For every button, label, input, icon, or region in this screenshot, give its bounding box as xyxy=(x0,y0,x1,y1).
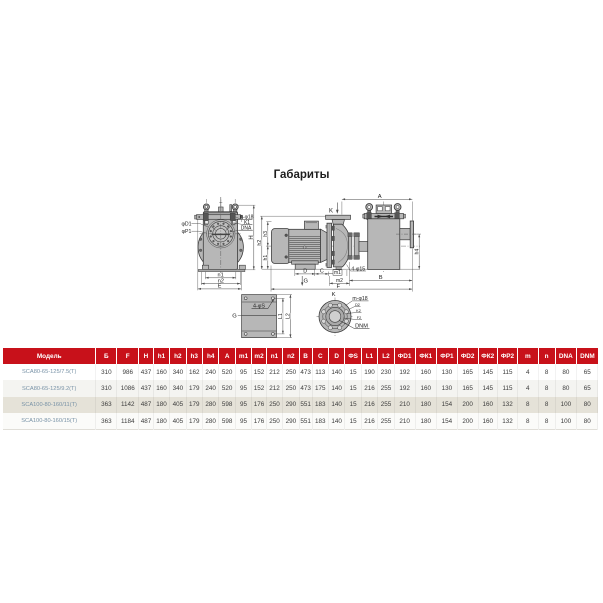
svg-text:L2: L2 xyxy=(286,313,292,319)
svg-text:h3: h3 xyxy=(263,231,269,237)
svg-text:K: K xyxy=(332,292,336,298)
svg-text:φD1: φD1 xyxy=(182,221,192,227)
svg-text:D2: D2 xyxy=(355,303,360,307)
svg-text:h4: h4 xyxy=(414,249,420,255)
svg-text:φP1: φP1 xyxy=(182,229,192,235)
svg-text:H: H xyxy=(249,235,255,239)
svg-text:G: G xyxy=(232,313,237,319)
svg-text:B: B xyxy=(379,275,383,281)
svg-text:C: C xyxy=(320,269,324,275)
svg-text:L1: L1 xyxy=(278,313,284,319)
svg-text:K: K xyxy=(329,209,333,215)
svg-text:F2: F2 xyxy=(357,316,361,320)
svg-text:h2: h2 xyxy=(257,240,263,246)
svg-text:D: D xyxy=(303,269,307,275)
svg-text:m1: m1 xyxy=(334,270,341,276)
svg-text:DNA: DNA xyxy=(241,225,252,231)
svg-text:G: G xyxy=(304,278,309,284)
svg-text:F: F xyxy=(337,284,341,290)
svg-text:A: A xyxy=(378,194,382,200)
svg-text:h1: h1 xyxy=(263,255,269,261)
svg-text:E: E xyxy=(218,284,222,290)
svg-text:K2: K2 xyxy=(356,309,361,313)
